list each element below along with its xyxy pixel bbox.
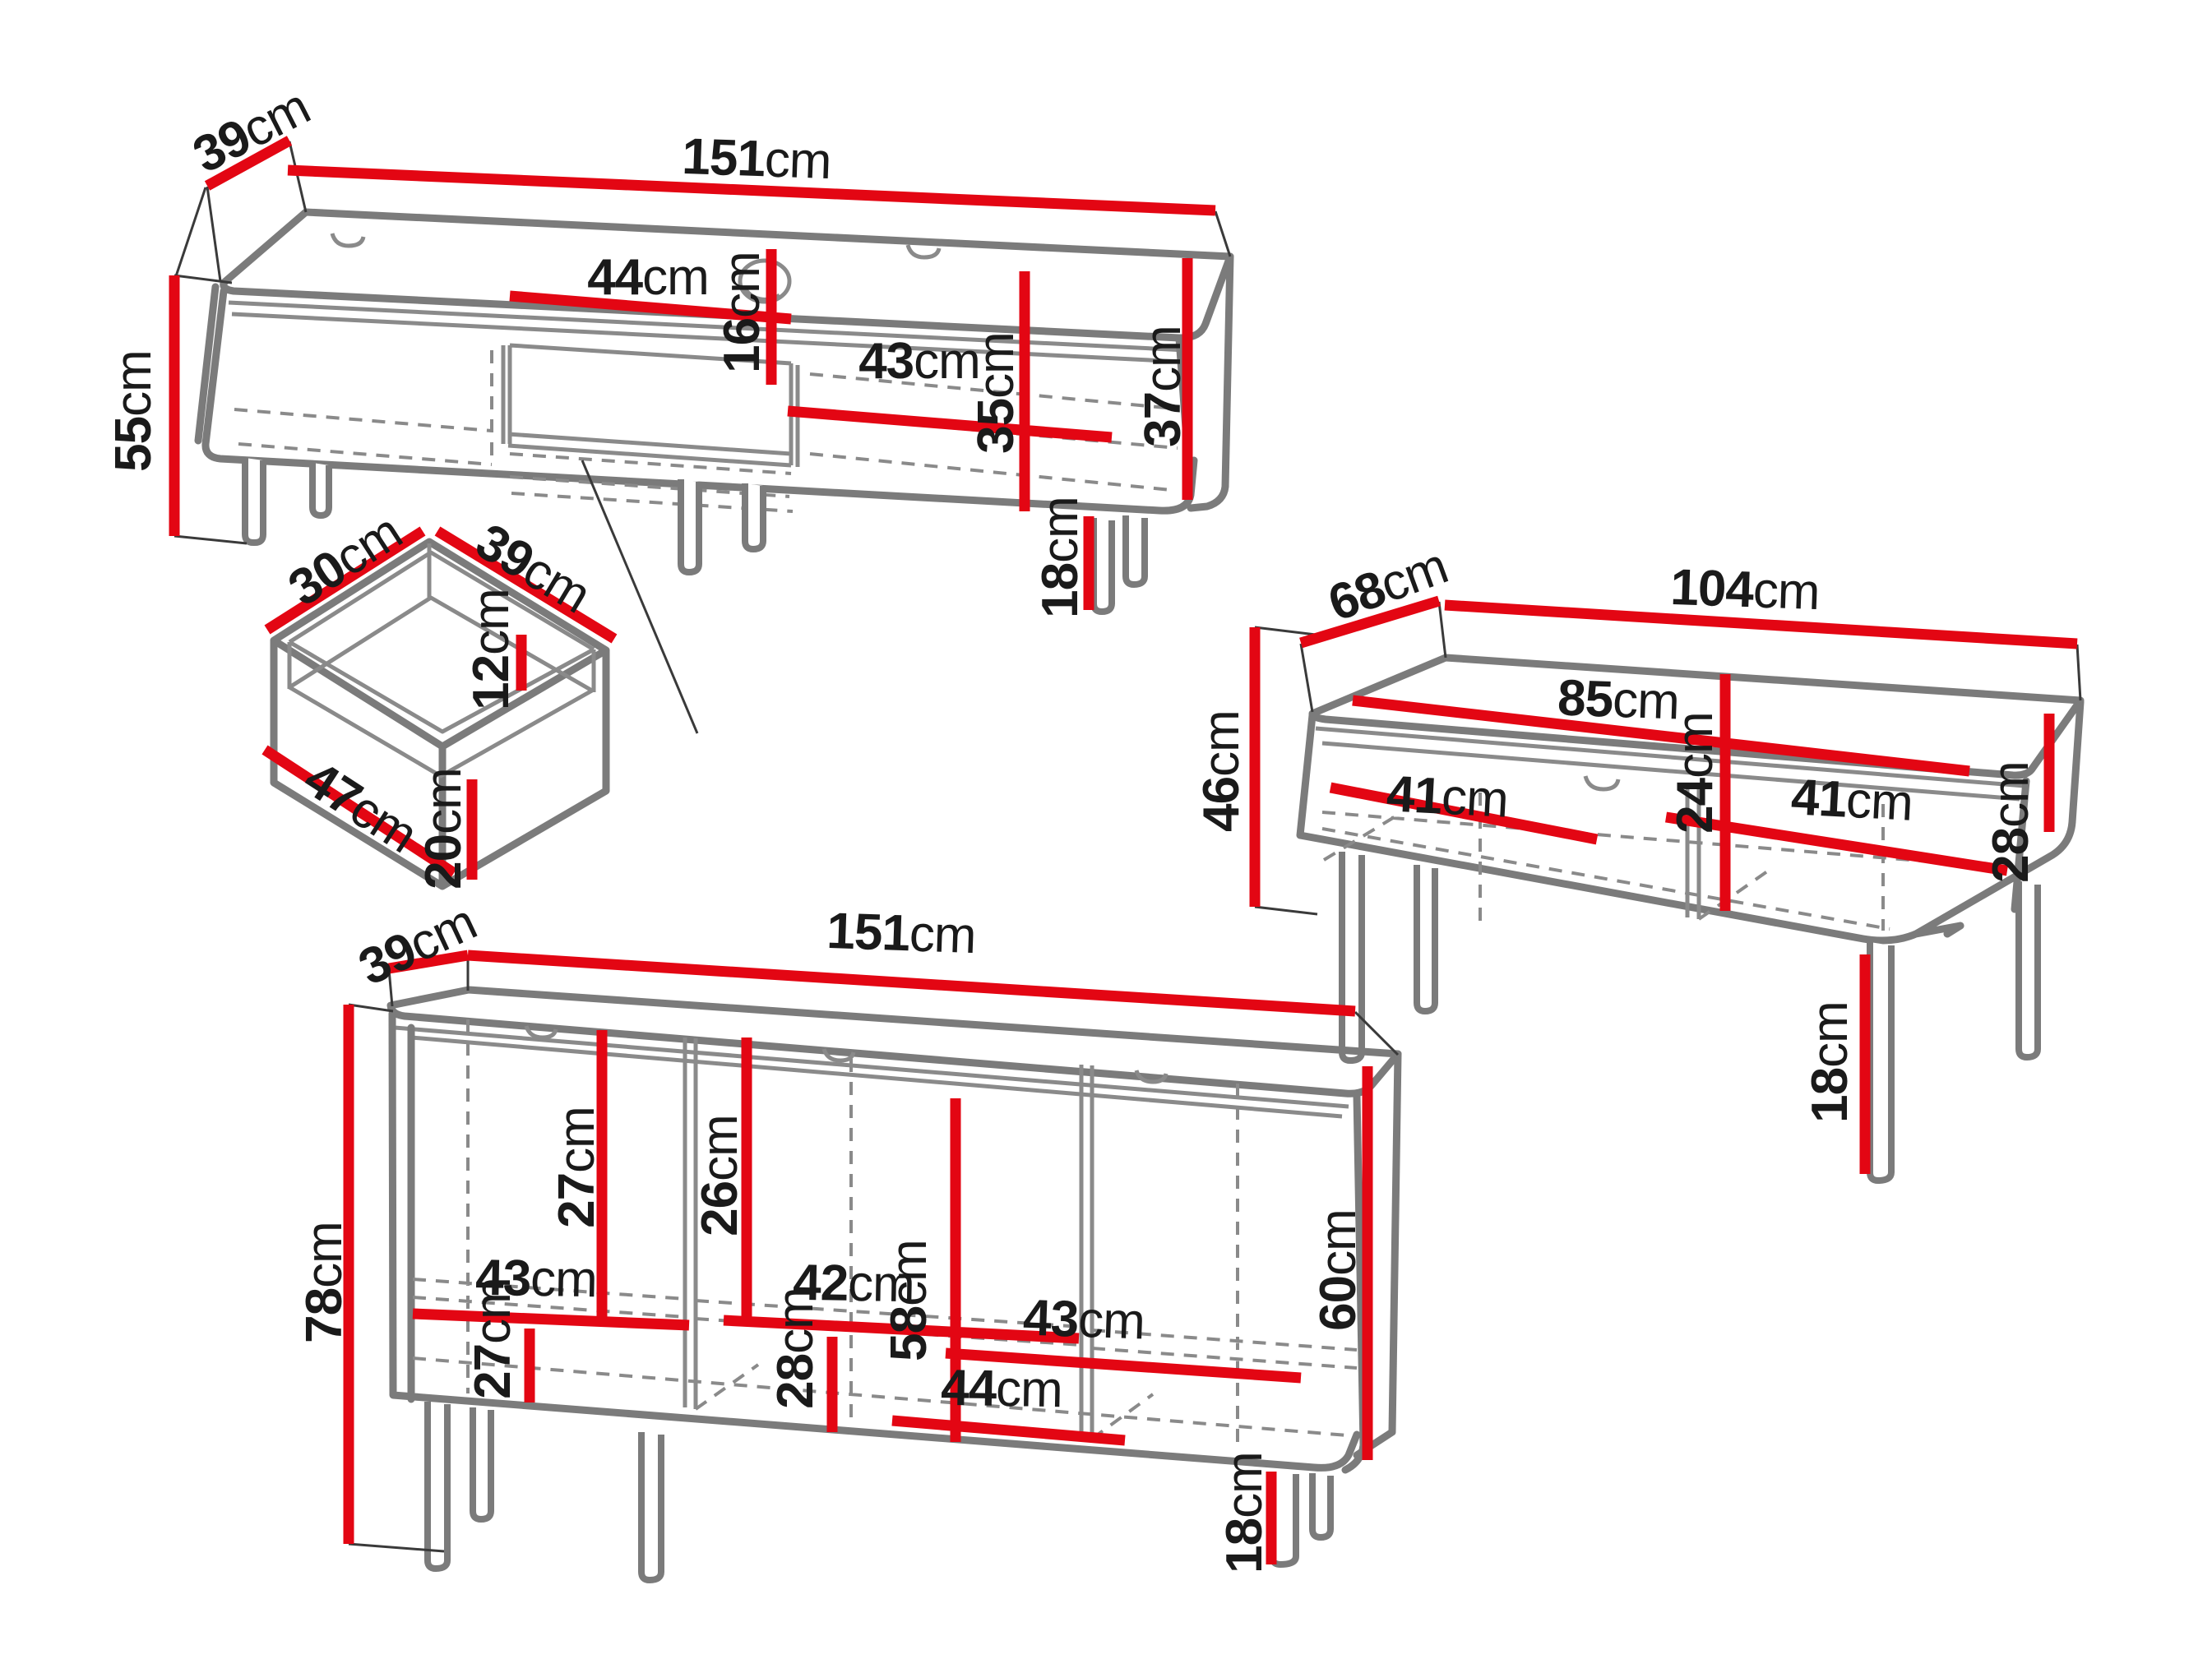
tv-leg <box>312 463 329 515</box>
dim-label-sideboard-upper-left-height: 27cm <box>552 1107 603 1228</box>
dim-label-coffee-leg-height: 18cm <box>1805 1001 1856 1123</box>
tv-leg <box>1094 518 1112 612</box>
tv-leg <box>245 458 263 543</box>
dim-label-sideboard-middle-upper-height: 26cm <box>695 1115 746 1236</box>
dim-label-sideboard-right-width: 43cm <box>1022 1292 1145 1347</box>
dim-label-drawer-front-height: 20cm <box>419 768 470 890</box>
sideboard-leg <box>428 1402 447 1569</box>
dim-label-tv-compartment-height: 35cm <box>971 332 1022 454</box>
dim-label-sideboard-lower-right-width: 44cm <box>941 1363 1063 1416</box>
dim-label-coffee-left-compartment: 41cm <box>1386 769 1510 826</box>
dim-label-drawer-inner-height: 12cm <box>466 589 517 710</box>
dim-label-sideboard-lower-left-height: 27cm <box>468 1278 519 1399</box>
coffee-leg <box>1417 865 1435 1011</box>
dim-label-coffee-side-height: 28cm <box>1986 761 2037 883</box>
coffee-leg <box>2019 881 2038 1057</box>
tv-door-handle-notch-left <box>332 233 363 246</box>
dim-label-sideboard-width: 151cm <box>826 906 976 962</box>
dim-label-tv-compartment-width: 43cm <box>858 336 980 387</box>
dim-label-sideboard-height: 78cm <box>299 1222 350 1343</box>
sideboard-leg <box>473 1407 491 1519</box>
dim-label-tv-side-height: 37cm <box>1138 326 1189 447</box>
tv-leg <box>681 479 699 572</box>
coffee-handle-notch <box>1585 776 1618 789</box>
dim-label-coffee-height: 46cm <box>1196 710 1247 832</box>
dim-label-sideboard-inner-height: 60cm <box>1313 1209 1364 1331</box>
tv-door-handle-notch-right <box>908 245 939 257</box>
coffee-leg <box>1870 942 1891 1181</box>
dim-label-tv-leg-height: 18cm <box>1035 497 1086 618</box>
dim-label-tv-height: 55cm <box>109 350 160 472</box>
dim-label-sideboard-leg-height: 18cm <box>1219 1452 1270 1574</box>
dim-label-coffee-inner-width: 85cm <box>1557 672 1680 728</box>
dim-label-sideboard-tall-inner-height: 58cm <box>884 1240 935 1361</box>
sideboard-leg <box>641 1432 661 1580</box>
tv-leg <box>745 483 763 549</box>
dim-label-coffee-width: 104cm <box>1669 562 1820 618</box>
dim-label-coffee-right-compartment: 41cm <box>1790 772 1914 829</box>
sideboard-leg <box>1312 1473 1330 1537</box>
dim-label-tv-width: 151cm <box>681 132 831 187</box>
tv-leg <box>1126 515 1145 585</box>
dim-label-coffee-inner-height: 24cm <box>1670 712 1721 834</box>
dim-label-sideboard-lower-middle-height: 28cm <box>770 1287 821 1409</box>
dim-label-tv-niche-width: 44cm <box>587 252 709 303</box>
technical-drawing-canvas: 39cm 151cm 55cm 44cm 16cm 43cm 35cm 37cm… <box>0 0 2212 1659</box>
coffee-leg <box>1342 852 1362 1061</box>
dim-label-tv-niche-height: 16cm <box>717 252 768 373</box>
